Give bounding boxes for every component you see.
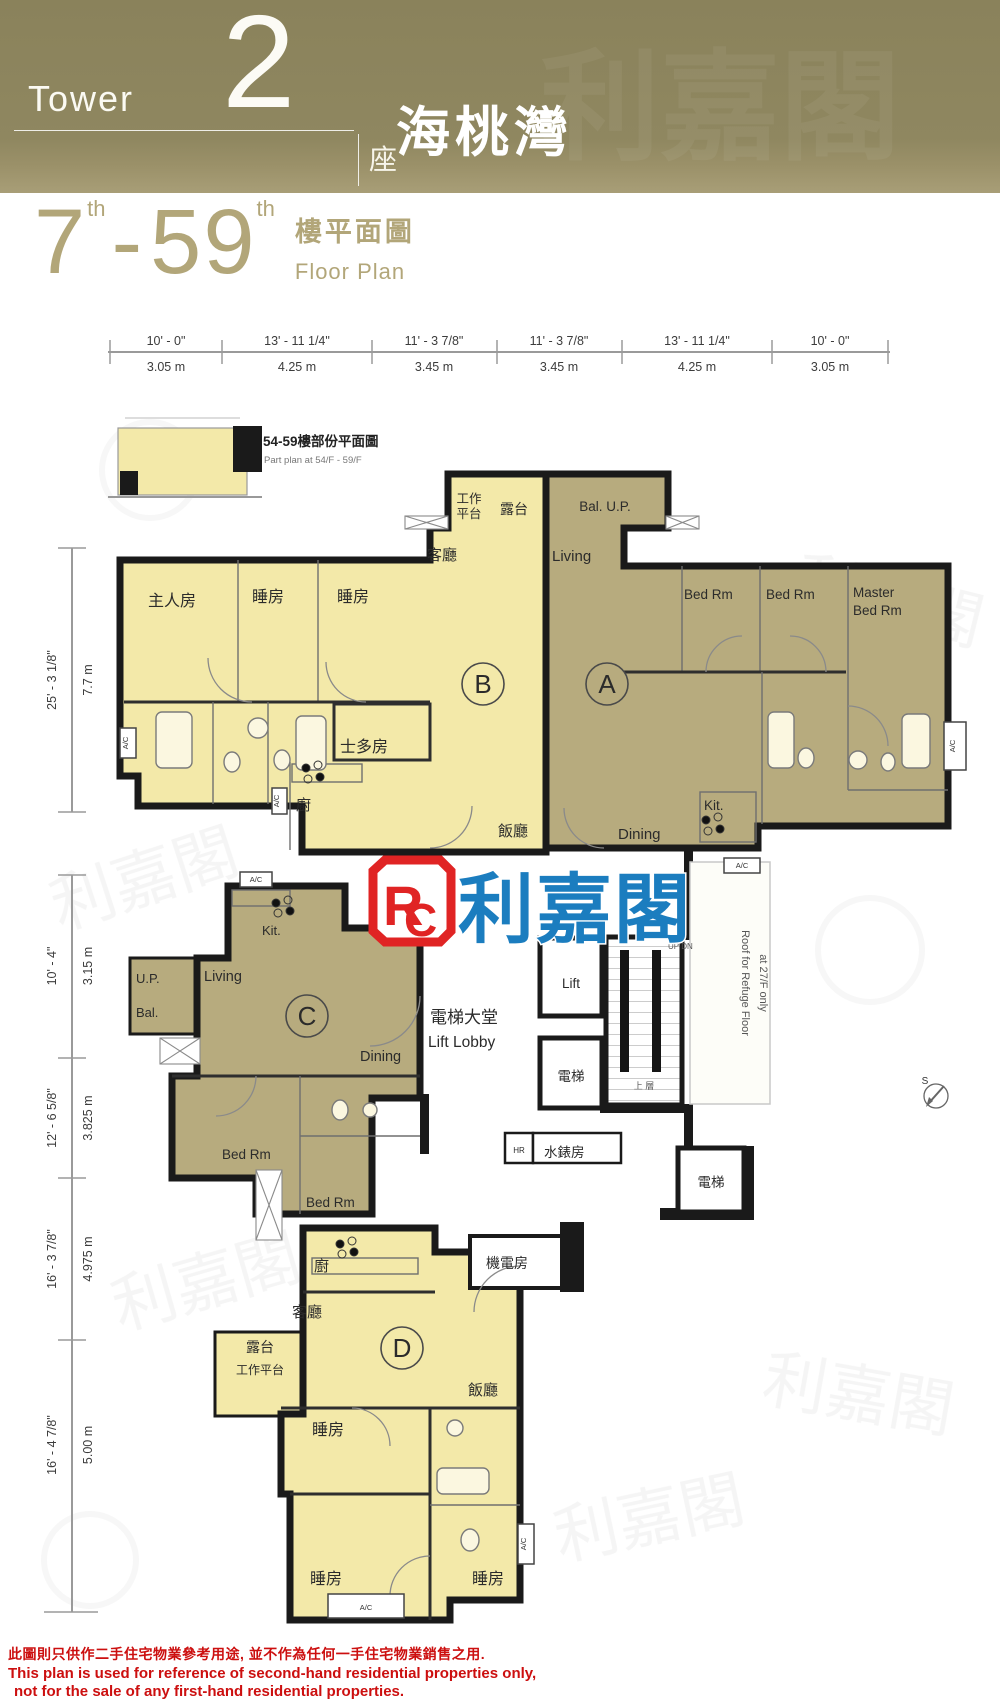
ac-label: A/C: [272, 794, 281, 807]
floor-plan-title-en: Floor Plan: [295, 259, 415, 285]
room-kitchen-en: Kit.: [704, 798, 724, 813]
top-dimension-line: [108, 340, 890, 364]
agency-logo: R C 利嘉閣: [373, 860, 692, 953]
room-living-en: Living: [204, 969, 242, 985]
refuge-roof-label: Roof for Refuge Floor: [739, 930, 751, 1036]
room-bedroom: 睡房: [472, 1570, 504, 1588]
dim-m: 3.825 m: [81, 1095, 95, 1140]
floor-dash: -: [112, 196, 145, 288]
dim-ft: 10' - 0": [147, 334, 186, 348]
room-master-bedroom-en: Master: [853, 585, 895, 600]
room-balcony-en: Bal.: [136, 1005, 158, 1020]
unit-b-badge: B: [474, 669, 491, 699]
disclaimer: 此圖則只供作二手住宅物業參考用途, 並不作為任何一手住宅物業銷售之用. This…: [8, 1644, 536, 1700]
room-store: 士多房: [340, 738, 388, 756]
lift-label-en: Lift: [562, 976, 580, 991]
room-master-bedroom-en: Bed Rm: [853, 603, 902, 618]
compass: S: [922, 1076, 948, 1108]
room-work-platform: 工作平台: [236, 1362, 284, 1377]
ac-label: A/C: [736, 861, 749, 870]
staircase: [606, 937, 682, 1105]
stairs-upper-label: 上 層: [634, 1081, 655, 1091]
disclaimer-zh: 此圖則只供作二手住宅物業參考用途, 並不作為任何一手住宅物業銷售之用.: [8, 1644, 536, 1664]
hose-reel-label: HR: [513, 1146, 525, 1155]
unit-c-badge: C: [298, 1001, 317, 1031]
room-work-platform: 工作: [456, 492, 482, 506]
room-kitchen-en: Kit.: [262, 923, 281, 938]
dim-m: 3.15 m: [81, 947, 95, 985]
room-bedroom: 睡房: [337, 588, 369, 606]
room-bedroom: 睡房: [310, 1570, 342, 1588]
room-dining-en: Dining: [618, 826, 661, 843]
dim-m: 4.25 m: [678, 360, 716, 374]
dim-ft: 11' - 3 7/8": [530, 334, 589, 348]
floor-to: 59: [150, 196, 256, 288]
part-plan-label-zh: 54-59樓部份平面圖: [263, 433, 379, 449]
em-room-label: 機電房: [486, 1255, 528, 1271]
top-dimension-labels: 10' - 0" 3.05 m 13' - 11 1/4" 4.25 m 11'…: [147, 334, 850, 374]
tower-label: Tower: [28, 78, 134, 120]
room-dining-zh: 飯廳: [498, 822, 528, 840]
floor-plan-title-zh: 樓平面圖: [295, 210, 415, 249]
lift-lobby-en: Lift Lobby: [428, 1034, 495, 1051]
logo-letter-c: C: [404, 894, 437, 946]
floor-from: 7: [34, 196, 87, 288]
dim-m: 3.45 m: [540, 360, 578, 374]
tower-number: 2: [222, 0, 295, 137]
room-bedroom: Bed Rm: [222, 1147, 271, 1162]
unit-a-badge: A: [598, 669, 616, 699]
room-kitchen-zh: 廚: [296, 796, 311, 814]
water-meter-label: 水錶房: [544, 1145, 585, 1160]
left-dimension-labels: 25' - 3 1/8" 7.7 m 10' - 4" 3.15 m 12' -…: [45, 650, 95, 1475]
room-balcony-up: Bal. U.P.: [579, 499, 631, 514]
room-work-platform: 平台: [456, 506, 481, 521]
dim-ft: 13' - 11 1/4": [264, 334, 330, 348]
dim-m: 5.00 m: [81, 1426, 95, 1464]
dim-m: 4.975 m: [81, 1236, 95, 1281]
refuge-roof-label: at 27/F only: [757, 954, 769, 1012]
svg-text:利嘉閣: 利嘉閣: [758, 1343, 960, 1447]
tower-suffix: 座: [358, 134, 397, 186]
project-name: 海桃灣: [396, 88, 573, 167]
dim-m: 3.05 m: [811, 360, 849, 374]
header-banner: 利嘉閣 Tower 2 座 海桃灣: [0, 0, 1000, 193]
room-living-zh: 客廳: [427, 546, 457, 564]
dim-ft: 10' - 4": [45, 947, 59, 986]
disclaimer-en-line1: This plan is used for reference of secon…: [8, 1665, 536, 1682]
room-bedroom: Bed Rm: [684, 587, 733, 602]
room-balcony-zh: 露台: [246, 1339, 274, 1355]
ac-label: A/C: [121, 736, 130, 749]
ac-label: A/C: [360, 1603, 373, 1612]
dim-ft: 12' - 6 5/8": [45, 1088, 59, 1148]
room-living-en: Living: [552, 548, 591, 565]
dim-ft: 11' - 3 7/8": [405, 334, 464, 348]
svg-text:利嘉閣: 利嘉閣: [548, 1463, 751, 1573]
ac-label: A/C: [519, 1537, 528, 1550]
ac-label: A/C: [250, 875, 263, 884]
dim-ft: 13' - 11 1/4": [664, 334, 730, 348]
room-bedroom: Bed Rm: [306, 1195, 355, 1210]
tower-underline: [14, 130, 354, 131]
dim-ft: 10' - 0": [811, 334, 850, 348]
lift-label-zh: 電梯: [698, 1175, 725, 1190]
banner-watermark: 利嘉閣: [540, 10, 900, 184]
unit-d-badge: D: [393, 1333, 412, 1363]
room-kitchen-zh: 廚: [314, 1257, 329, 1275]
dim-ft: 25' - 3 1/8": [45, 650, 59, 710]
dim-m: 4.25 m: [278, 360, 316, 374]
room-master-bedroom: 主人房: [148, 592, 196, 610]
room-bedroom: 睡房: [312, 1421, 344, 1439]
ac-label: A/C: [948, 739, 957, 752]
lift-lobby-zh: 電梯大堂: [430, 1008, 498, 1027]
part-plan-label-en: Part plan at 54/F - 59/F: [264, 455, 362, 466]
room-living-zh: 客廳: [292, 1303, 322, 1321]
part-plan: 54-59樓部份平面圖 Part plan at 54/F - 59/F: [108, 418, 379, 497]
room-bedroom: 睡房: [252, 588, 284, 606]
dim-m: 3.45 m: [415, 360, 453, 374]
room-bedroom: Bed Rm: [766, 587, 815, 602]
floor-range-title: 7th - 59th 樓平面圖 Floor Plan: [34, 196, 415, 288]
agency-name: 利嘉閣: [458, 868, 692, 953]
room-up: U.P.: [136, 971, 160, 986]
compass-south-label: S: [922, 1076, 929, 1087]
lift-label-zh: 電梯: [558, 1069, 585, 1084]
floor-plan: 利嘉閣 利嘉閣 利嘉閣 利嘉閣 利嘉閣 10' - 0" 3.05 m 13' …: [0, 318, 1000, 1630]
room-dining-zh: 飯廳: [468, 1381, 498, 1399]
room-balcony-zh: 露台: [500, 501, 528, 517]
dim-ft: 16' - 3 7/8": [45, 1229, 59, 1289]
dim-m: 7.7 m: [81, 664, 95, 695]
floor-to-sup: th: [257, 196, 275, 222]
dim-ft: 16' - 4 7/8": [45, 1415, 59, 1475]
floor-from-sup: th: [87, 196, 105, 222]
room-dining-en: Dining: [360, 1049, 401, 1065]
dim-m: 3.05 m: [147, 360, 185, 374]
